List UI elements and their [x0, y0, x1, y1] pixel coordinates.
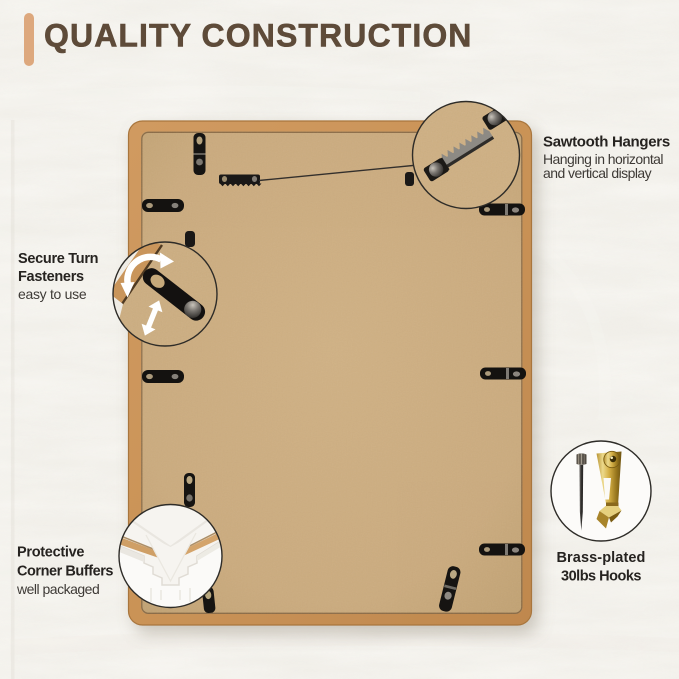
svg-text:Sawtooth Hangers: Sawtooth Hangers [543, 134, 670, 151]
svg-text:well packaged: well packaged [16, 581, 99, 597]
svg-text:Secure Turn: Secure Turn [18, 251, 98, 267]
svg-text:Brass-plated: Brass-plated [556, 550, 645, 566]
svg-text:30lbs Hooks: 30lbs Hooks [561, 568, 641, 584]
svg-text:Corner Buffers: Corner Buffers [17, 564, 113, 580]
svg-text:and vertical display: and vertical display [543, 165, 652, 181]
svg-text:Fasteners: Fasteners [18, 269, 84, 285]
svg-text:QUALITY CONSTRUCTION: QUALITY CONSTRUCTION [44, 18, 473, 54]
svg-text:easy to use: easy to use [18, 286, 87, 302]
svg-text:Protective: Protective [17, 544, 84, 560]
